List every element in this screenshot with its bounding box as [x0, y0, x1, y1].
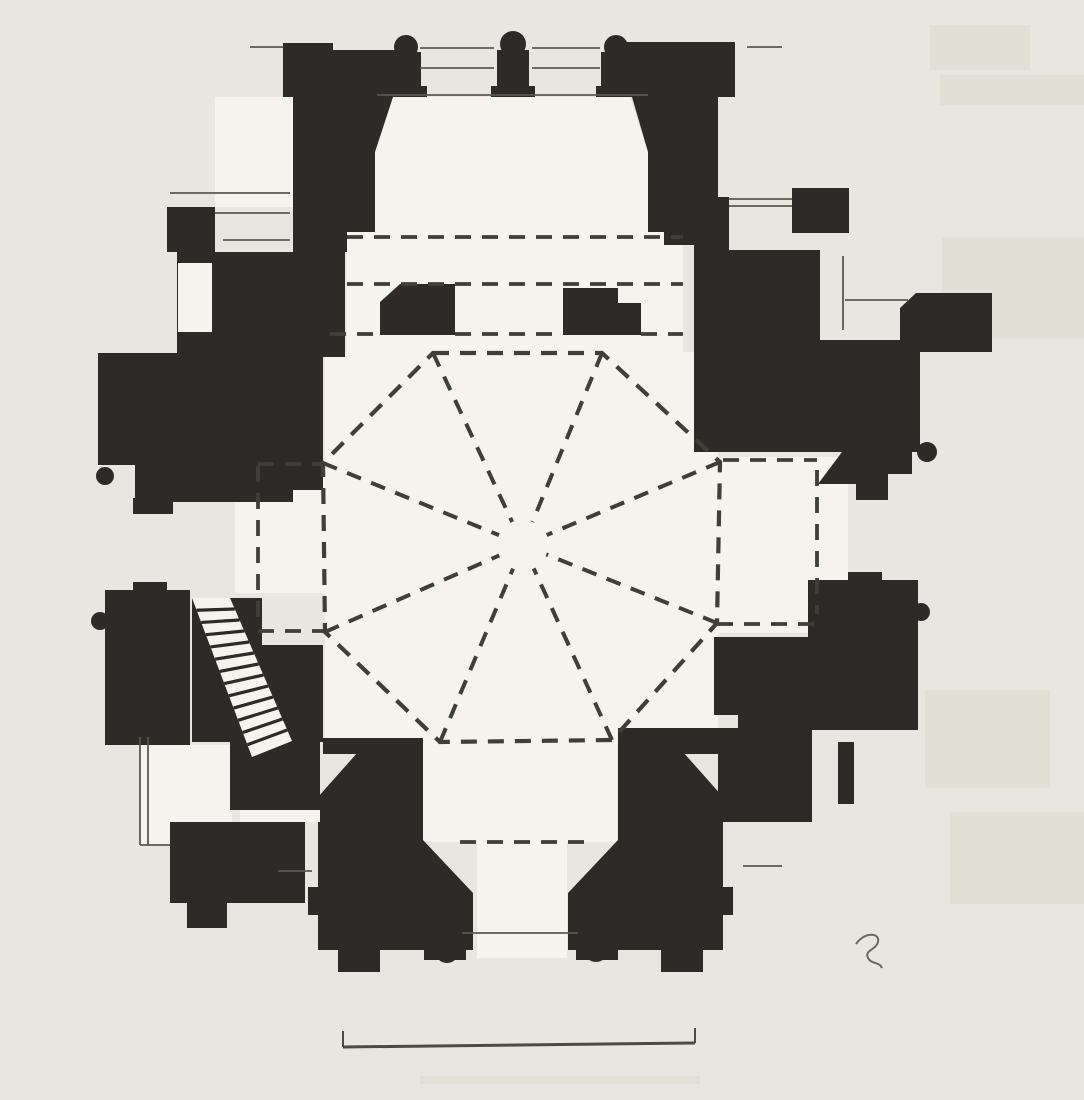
sw-chapel-south: [170, 822, 305, 903]
northwest-bay-interior: [215, 97, 293, 207]
se-chapel-nub: [848, 572, 882, 582]
ne-chapel-outer: [900, 293, 992, 352]
sw-chapel-nub: [133, 582, 167, 592]
apse-shaft-1: [392, 52, 421, 90]
ne-chapel-bulb: [917, 442, 937, 462]
ne-chapel-lower: [694, 357, 820, 452]
sw-chapel-block: [105, 590, 190, 745]
sw-ledge: [323, 738, 423, 754]
stair-step: [197, 609, 235, 610]
portal-interior: [477, 842, 567, 958]
sw-chapel-slot: [240, 810, 320, 822]
apse-interior: [375, 97, 648, 232]
se-link: [618, 728, 738, 754]
apse-shaft-3: [601, 52, 630, 90]
apse-shaft-2: [497, 50, 529, 90]
ghost-patch-6: [420, 1076, 700, 1084]
nw-chapel-bulb: [96, 467, 114, 485]
se-pier-bulb: [584, 938, 608, 962]
nw-chapel-foot-nub: [133, 498, 173, 514]
sw-chapel-bulb: [91, 612, 109, 630]
ne-chapel-east: [820, 340, 920, 452]
sw-chapel-mid: [230, 742, 320, 810]
ne-chapel-buttress: [792, 188, 849, 233]
se-chapel-bulb: [912, 603, 930, 621]
se-pier-foot-1: [661, 946, 703, 972]
south-bay-interior: [423, 742, 617, 842]
church-floor-plan: [0, 0, 1084, 1100]
se-chapel-upper: [808, 580, 918, 730]
se-chapel-wall: [838, 742, 854, 804]
nw-chapel-window-recess: [178, 263, 212, 332]
ghost-patch-2: [940, 75, 1084, 105]
ghost-patch-5: [950, 812, 1084, 904]
se-chapel-east: [718, 752, 812, 822]
nw-chapel-west: [98, 353, 180, 465]
nw-chapel-buttress: [167, 207, 215, 252]
ghost-patch-1: [930, 25, 1030, 70]
nw-chapel-foot: [135, 462, 293, 502]
sw-pier-foot-1: [338, 946, 380, 972]
scanned-plan-page: [0, 0, 1084, 1100]
sw-chapel-south-foot: [187, 900, 227, 928]
nw-chapel-neck: [293, 205, 347, 252]
ghost-patch-4: [925, 690, 1050, 788]
ne-chapel-upper: [694, 250, 820, 357]
ne-chapel-neck: [694, 197, 729, 253]
sw-pier-bulb: [435, 939, 459, 963]
